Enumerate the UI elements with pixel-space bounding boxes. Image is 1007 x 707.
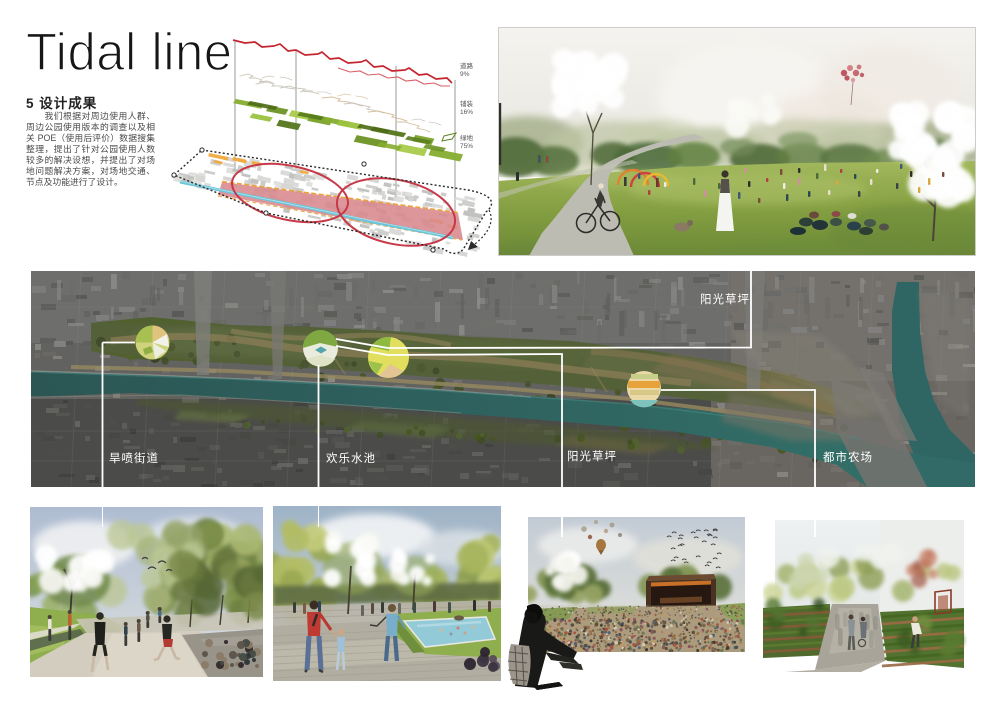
svg-text:75%: 75% xyxy=(460,143,473,150)
svg-text:9%: 9% xyxy=(460,71,470,78)
svg-text:铺装: 铺装 xyxy=(460,99,474,108)
svg-text:16%: 16% xyxy=(460,109,473,116)
svg-text:绿地: 绿地 xyxy=(460,133,474,142)
svg-text:道路: 道路 xyxy=(460,61,474,70)
